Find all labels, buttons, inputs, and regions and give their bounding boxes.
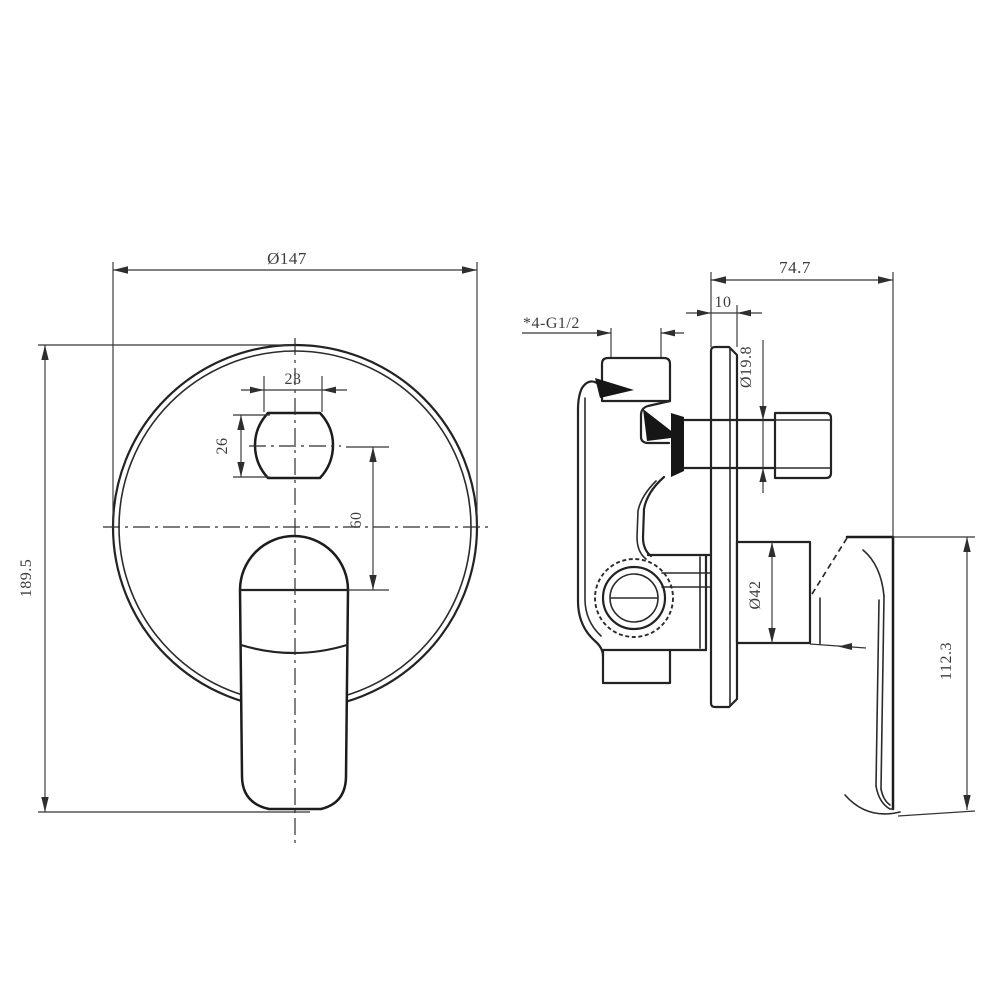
dimension-thread-spec: *4-G1/2 [522,315,684,357]
dim-label-dia147: Ø147 [267,249,307,268]
body-s-curve-outer [643,477,664,556]
dimension-nut-width: 23 [241,371,347,412]
handle-front-line-2 [881,596,884,789]
side-view: 74.7 10 *4-G1/2 Ø19.8 [522,258,975,816]
dim-label-26: 26 [214,438,231,455]
dimension-faceplate-diameter: Ø147 [113,249,477,527]
dim-label-thread: *4-G1/2 [523,315,580,332]
threaded-port [595,559,673,637]
dim-label-dia19-8: Ø19.8 [738,346,755,388]
dimension-outlet-diameter: Ø19.8 [738,340,767,493]
wall-plate [711,347,737,707]
dim-label-74-7: 74.7 [779,258,811,277]
seal-block-outlet [671,413,684,477]
technical-drawing-canvas: Ø147 189.5 23 26 [0,0,1000,1000]
front-view: Ø147 189.5 23 26 [18,249,489,848]
valve-body-section [578,358,711,683]
dim-label-189-5: 189.5 [18,559,35,598]
handle-front-outline [240,536,348,809]
body-left-wall-outer [578,381,603,656]
seal-wedge-top [595,378,634,398]
handle-cap-slant [812,538,847,594]
dim-label-10: 10 [715,294,732,311]
dim-label-dia42: Ø42 [747,580,764,609]
dimension-plate-thickness: 10 [686,294,762,347]
handle-side [812,537,900,814]
boss-leader-arrow [838,643,852,650]
bottom-port [603,650,670,683]
dimension-diverter-offset: 60 [346,447,389,590]
dim-label-112-3: 112.3 [938,642,955,680]
dimension-overall-depth: 74.7 [711,258,893,537]
drawing-svg: Ø147 189.5 23 26 [0,0,1000,1000]
dim-label-23: 23 [285,371,302,388]
handle-front [240,536,348,809]
handle-transition-arc [863,550,884,596]
dimension-handle-height: 112.3 [893,537,975,816]
handle-front-line-1 [876,600,879,786]
wall-plate-outline [711,347,737,707]
body-left-wall-inner [585,398,601,636]
boss-bottom-extension [810,644,866,648]
dim-label-60: 60 [348,512,365,529]
body-s-curve-inner [637,481,656,559]
outlet-pipe [684,413,831,478]
